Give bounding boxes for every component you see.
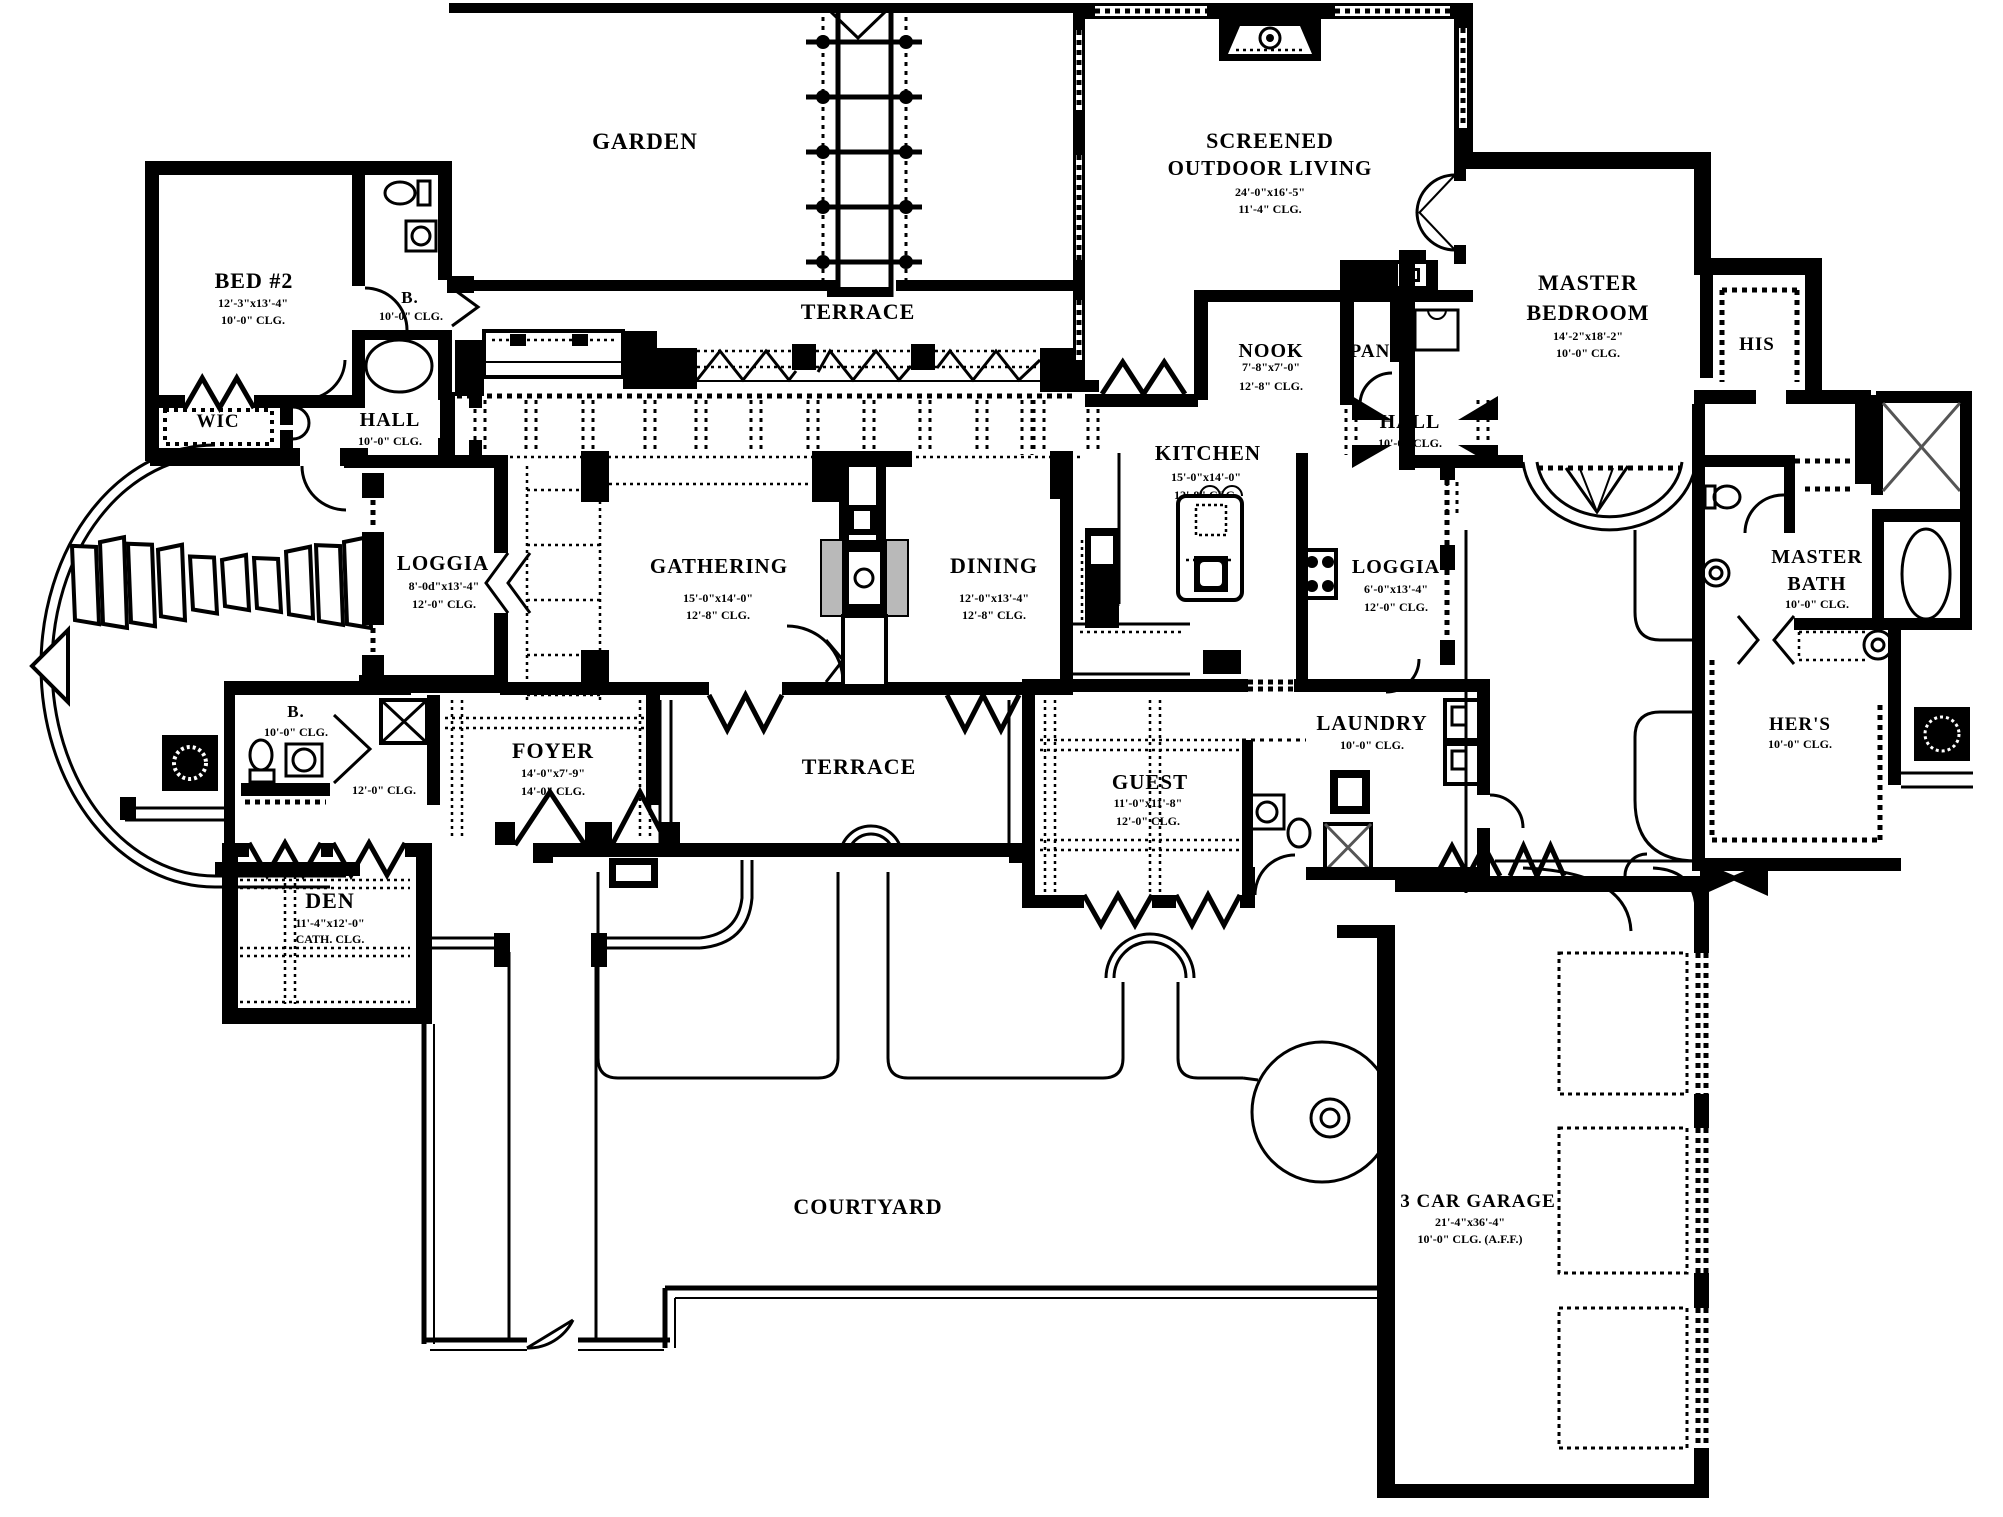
svg-text:6'-0"x13'-4": 6'-0"x13'-4" — [1364, 582, 1428, 596]
svg-text:BATH: BATH — [1787, 573, 1846, 595]
svg-text:15'-0"x14'-0": 15'-0"x14'-0" — [1171, 470, 1241, 484]
svg-text:GATHERING: GATHERING — [650, 554, 788, 578]
svg-text:KITCHEN: KITCHEN — [1155, 441, 1261, 465]
svg-text:3 CAR GARAGE: 3 CAR GARAGE — [1400, 1191, 1556, 1212]
svg-text:10'-0" CLG.: 10'-0" CLG. — [221, 313, 285, 327]
svg-text:BEDROOM: BEDROOM — [1526, 300, 1649, 325]
svg-text:MASTER: MASTER — [1771, 546, 1863, 568]
svg-text:GARDEN: GARDEN — [592, 129, 698, 154]
svg-text:GUEST: GUEST — [1112, 770, 1188, 794]
svg-text:10'-0" CLG.: 10'-0" CLG. — [358, 434, 422, 448]
svg-text:11'-4"x12'-0": 11'-4"x12'-0" — [295, 916, 364, 930]
svg-text:11'-0"x11'-8": 11'-0"x11'-8" — [1114, 796, 1183, 810]
svg-text:WIC: WIC — [196, 411, 239, 432]
svg-text:BED #2: BED #2 — [215, 268, 294, 293]
svg-text:10'-0" CLG.: 10'-0" CLG. — [1340, 738, 1404, 752]
svg-text:15'-0"x14'-0": 15'-0"x14'-0" — [683, 591, 753, 605]
svg-text:8'-0d"x13'-4": 8'-0d"x13'-4" — [409, 579, 480, 593]
svg-text:12'-0" CLG.: 12'-0" CLG. — [352, 783, 416, 797]
svg-text:10'-0" CLG.: 10'-0" CLG. — [1556, 346, 1620, 360]
svg-text:HALL: HALL — [1380, 411, 1441, 433]
svg-text:12'-0" CLG.: 12'-0" CLG. — [412, 597, 476, 611]
svg-text:12'-0" CLG.: 12'-0" CLG. — [1364, 600, 1428, 614]
svg-text:LOGGIA: LOGGIA — [1352, 556, 1440, 578]
svg-text:DINING: DINING — [950, 553, 1038, 578]
svg-text:LAUNDRY: LAUNDRY — [1316, 711, 1427, 735]
svg-text:10'-0" CLG.: 10'-0" CLG. — [1378, 436, 1442, 450]
svg-text:MASTER: MASTER — [1538, 270, 1638, 295]
svg-text:HER'S: HER'S — [1769, 714, 1831, 735]
svg-text:12'-0"x13'-4": 12'-0"x13'-4" — [959, 591, 1029, 605]
svg-text:10'-0" CLG.: 10'-0" CLG. — [1768, 737, 1832, 751]
svg-text:7'-8"x7'-0": 7'-8"x7'-0" — [1242, 360, 1300, 374]
svg-text:HIS: HIS — [1739, 334, 1775, 355]
svg-text:10'-0" CLG. (A.F.F.): 10'-0" CLG. (A.F.F.) — [1417, 1232, 1522, 1246]
svg-text:10'-0" CLG.: 10'-0" CLG. — [264, 725, 328, 739]
svg-text:TERRACE: TERRACE — [801, 299, 916, 324]
svg-text:PAN: PAN — [1350, 341, 1391, 362]
svg-text:11'-4" CLG.: 11'-4" CLG. — [1238, 202, 1301, 216]
svg-text:10'-0" CLG.: 10'-0" CLG. — [1785, 597, 1849, 611]
svg-text:12'-8" CLG.: 12'-8" CLG. — [962, 608, 1026, 622]
svg-text:21'-4"x36'-4": 21'-4"x36'-4" — [1435, 1215, 1505, 1229]
svg-text:LOGGIA: LOGGIA — [397, 551, 489, 575]
svg-text:10'-0" CLG.: 10'-0" CLG. — [379, 309, 443, 323]
svg-text:TERRACE: TERRACE — [802, 754, 917, 779]
svg-text:COURTYARD: COURTYARD — [793, 1194, 942, 1219]
svg-text:SCREENED: SCREENED — [1206, 128, 1334, 153]
svg-text:B.: B. — [401, 288, 419, 307]
svg-text:CATH. CLG.: CATH. CLG. — [296, 932, 365, 946]
svg-text:DEN: DEN — [305, 888, 354, 913]
svg-text:HALL: HALL — [360, 409, 421, 431]
svg-text:NOOK: NOOK — [1238, 340, 1303, 362]
svg-text:B.: B. — [287, 702, 305, 721]
svg-text:12'-8" CLG.: 12'-8" CLG. — [686, 608, 750, 622]
svg-text:12'-0" CLG.: 12'-0" CLG. — [1116, 814, 1180, 828]
svg-text:12'-3"x13'-4": 12'-3"x13'-4" — [218, 296, 288, 310]
svg-text:24'-0"x16'-5": 24'-0"x16'-5" — [1235, 185, 1305, 199]
svg-text:OUTDOOR LIVING: OUTDOOR LIVING — [1168, 156, 1373, 180]
svg-text:12'-8" CLG.: 12'-8" CLG. — [1239, 379, 1303, 393]
svg-text:FOYER: FOYER — [512, 738, 594, 763]
svg-text:14'-2"x18'-2": 14'-2"x18'-2" — [1553, 329, 1623, 343]
svg-text:14'-0"x7'-9": 14'-0"x7'-9" — [521, 766, 585, 780]
